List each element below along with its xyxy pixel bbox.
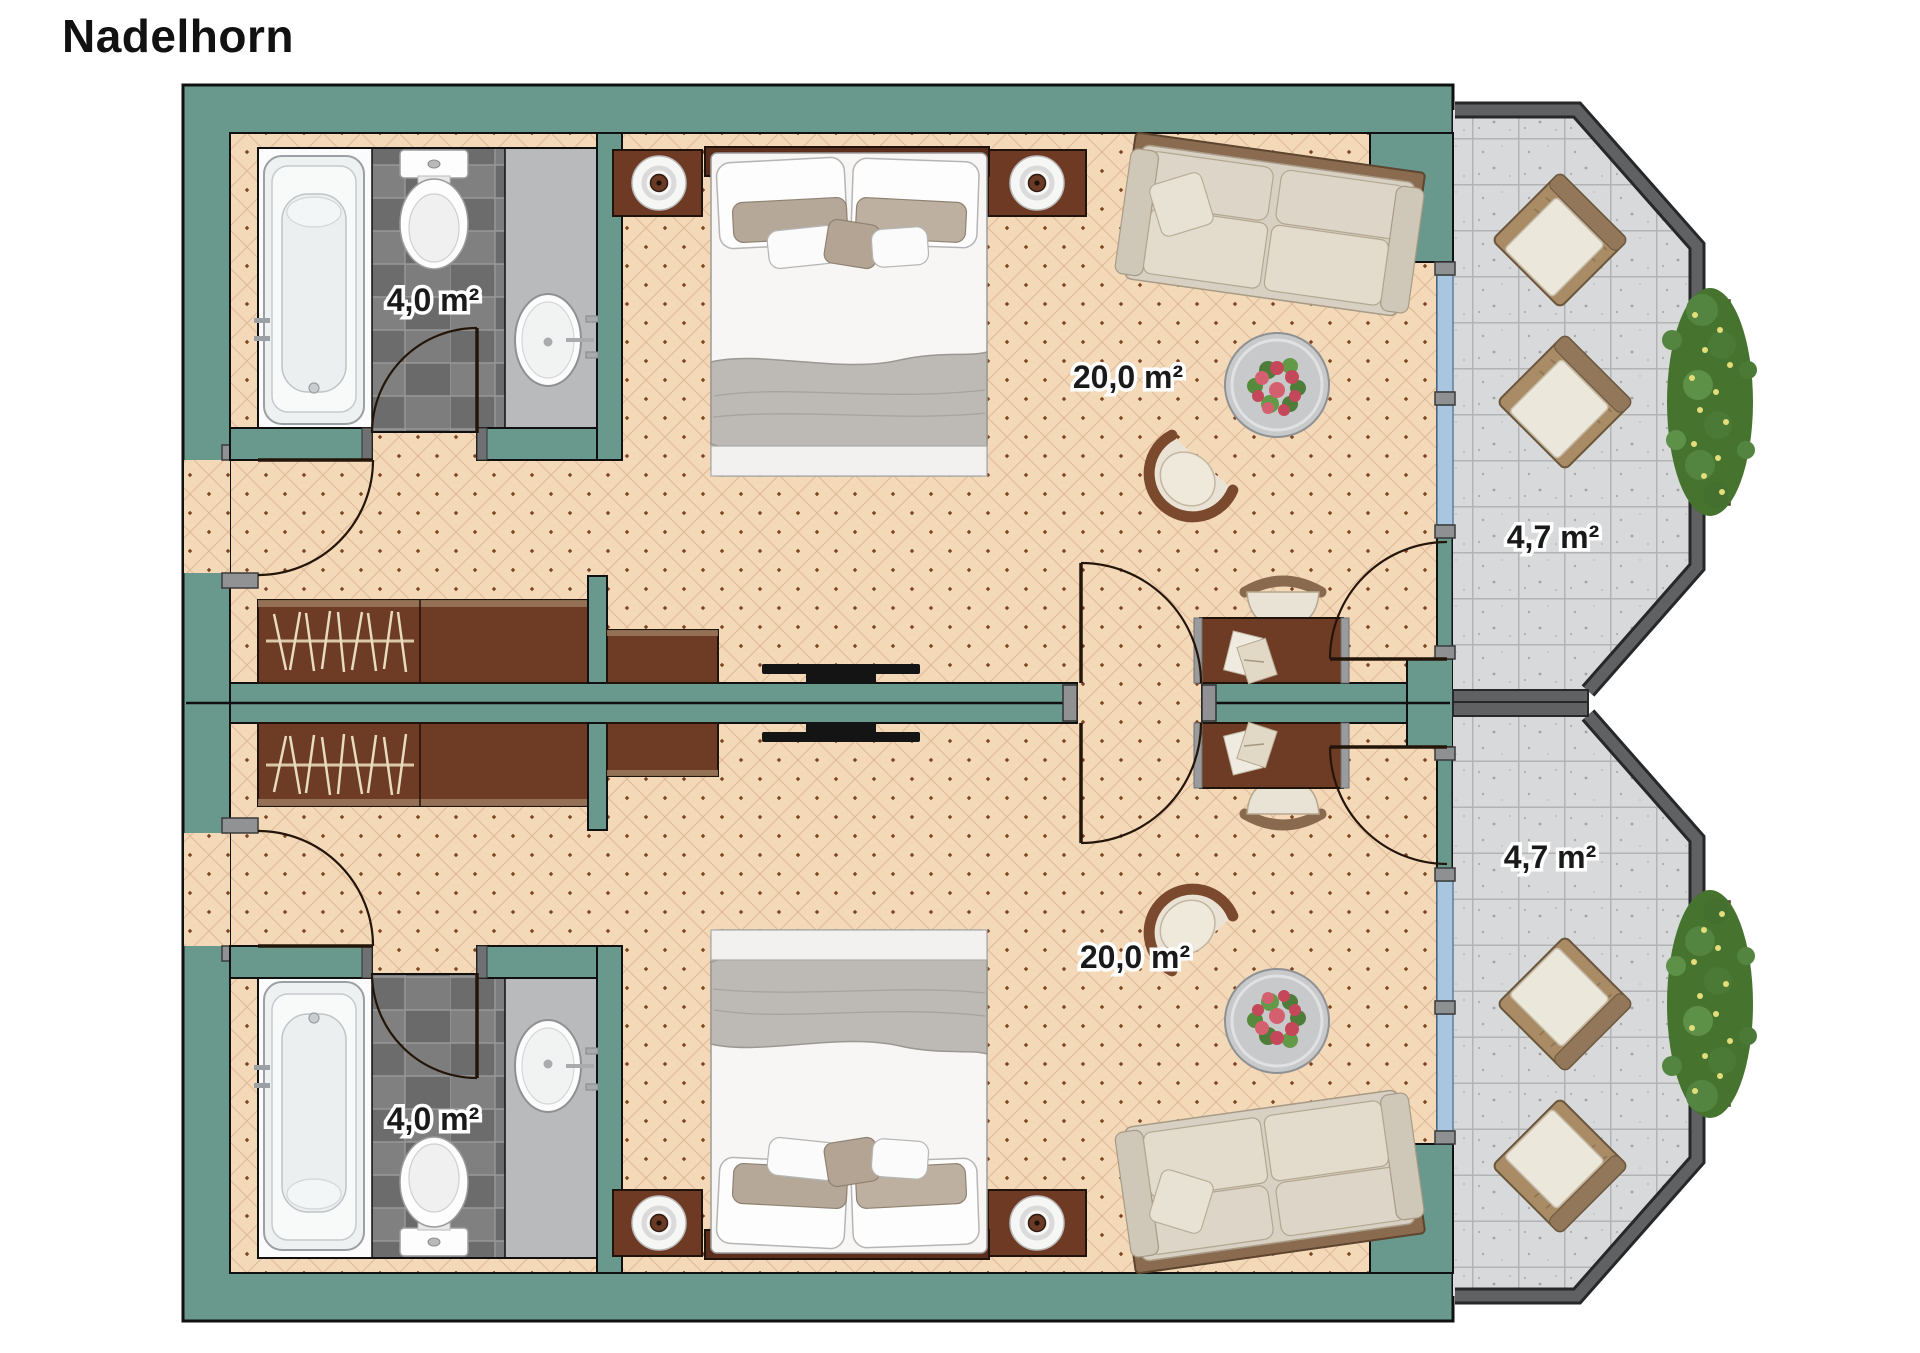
balcony-area-label-bottom: 4,7 m² [1504, 839, 1596, 875]
balcony-area-label-top: 4,7 m² [1507, 519, 1599, 555]
room-area-label-bottom: 20,0 m² [1080, 939, 1190, 975]
room-area-label-top: 20,0 m² [1073, 359, 1183, 395]
plan-title: Nadelhorn [62, 10, 294, 62]
bathroom-area-label-top: 4,0 m² [387, 282, 479, 318]
floorplan-canvas: Nadelhorn 4,0 m² 20,0 m² 4,7 m² 4,0 m² 2… [0, 0, 1920, 1353]
bathroom-area-label-bottom: 4,0 m² [387, 1101, 479, 1137]
